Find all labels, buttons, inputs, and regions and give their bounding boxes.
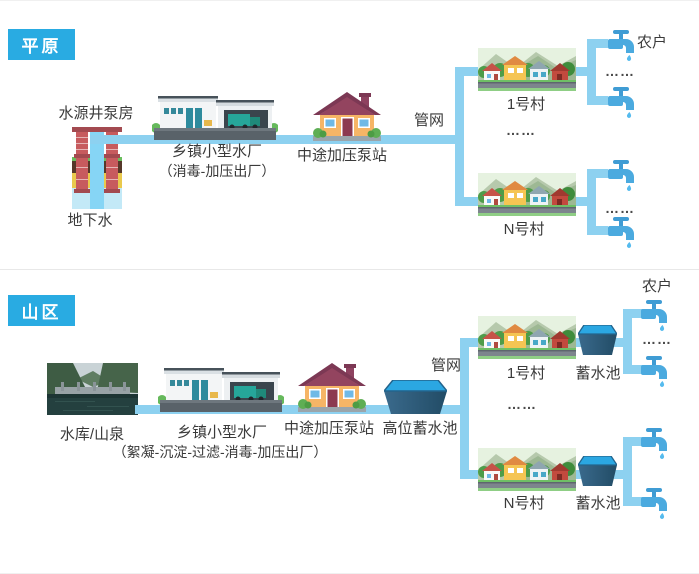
pipe-faucet-arm bbox=[587, 96, 608, 105]
ellipsis-faucets-village1-plain: …… bbox=[605, 63, 635, 79]
pipe-faucet-riser bbox=[623, 437, 632, 506]
pipe-faucet-arm bbox=[587, 39, 608, 48]
village-icon bbox=[478, 48, 576, 91]
pipe-stub-village1-mountain bbox=[460, 338, 478, 347]
faucet-icon bbox=[641, 300, 667, 332]
section-divider bbox=[0, 269, 699, 270]
label-groundwater: 地下水 bbox=[67, 212, 112, 229]
label-household-plain: 农户 bbox=[637, 34, 667, 51]
label-household-mountain: 农户 bbox=[642, 278, 672, 295]
label-well-house: 水源井泵房 bbox=[58, 105, 133, 122]
faucet-icon bbox=[641, 356, 667, 388]
pipe-network-vertical-mountain bbox=[460, 338, 469, 479]
label-village1-plain: 1号村 bbox=[507, 96, 545, 113]
pipe-faucet-arm bbox=[623, 309, 643, 318]
pipe-faucet-arm bbox=[623, 497, 643, 506]
village-icon bbox=[478, 173, 576, 216]
storage-pool-icon bbox=[578, 456, 617, 486]
section-badge-mountain: 山区 bbox=[8, 295, 75, 326]
label-plant-process-plain: （消毒-加压出厂） bbox=[159, 163, 276, 179]
high-storage-pool-icon bbox=[384, 380, 447, 414]
label-high-tank: 高位蓄水池 bbox=[382, 420, 457, 437]
label-pump-plain: 中途加压泵站 bbox=[297, 147, 387, 164]
label-tank-villageN: 蓄水池 bbox=[575, 495, 620, 512]
faucet-icon bbox=[608, 217, 634, 249]
water-plant-icon bbox=[158, 360, 284, 412]
reservoir-photo bbox=[47, 363, 138, 415]
label-network-mountain: 管网 bbox=[431, 357, 461, 374]
pipe-faucet-arm bbox=[623, 365, 643, 374]
water-plant-icon bbox=[152, 88, 278, 140]
label-villageN-plain: N号村 bbox=[504, 221, 545, 238]
label-network-plain: 管网 bbox=[414, 112, 444, 129]
pipe-faucet-arm bbox=[623, 437, 643, 446]
label-pump-mountain: 中途加压泵站 bbox=[284, 420, 374, 437]
label-reservoir: 水库/山泉 bbox=[60, 426, 124, 443]
label-plant-plain: 乡镇小型水厂 bbox=[172, 143, 262, 160]
pipe-stub-villageN-plain bbox=[464, 197, 478, 206]
ellipsis-villages-plain: …… bbox=[506, 122, 536, 138]
label-plant-mountain: 乡镇小型水厂 bbox=[177, 424, 267, 441]
ellipsis-villages-mountain: …… bbox=[507, 396, 537, 412]
pipe-stub-village1-plain bbox=[464, 67, 478, 76]
faucet-icon bbox=[608, 30, 634, 62]
label-villageN-mountain: N号村 bbox=[504, 495, 545, 512]
pipe-faucet-arm bbox=[587, 226, 608, 235]
label-tank-village1: 蓄水池 bbox=[575, 365, 620, 382]
pipe-network-vertical-plain bbox=[455, 67, 464, 206]
village-icon bbox=[478, 448, 576, 491]
faucet-icon bbox=[608, 160, 634, 192]
label-plant-process-mountain: （絮凝-沉淀-过滤-消毒-加压出厂） bbox=[113, 444, 328, 460]
pump-house-icon bbox=[311, 89, 383, 141]
section-badge-plain: 平原 bbox=[8, 29, 75, 60]
village-icon bbox=[478, 316, 576, 359]
faucet-icon bbox=[641, 488, 667, 520]
water-supply-diagram: 平原 bbox=[0, 0, 699, 574]
label-village1-mountain: 1号村 bbox=[507, 365, 545, 382]
storage-pool-icon bbox=[578, 325, 617, 355]
ellipsis-faucets-village1-mountain: …… bbox=[642, 331, 672, 347]
faucet-icon bbox=[608, 87, 634, 119]
pipe-stub-villageN-mountain bbox=[460, 470, 478, 479]
ellipsis-faucets-villageN-plain: …… bbox=[605, 200, 635, 216]
faucet-icon bbox=[641, 428, 667, 460]
pipe-faucet-arm bbox=[587, 169, 608, 178]
pump-house-icon bbox=[296, 360, 368, 412]
